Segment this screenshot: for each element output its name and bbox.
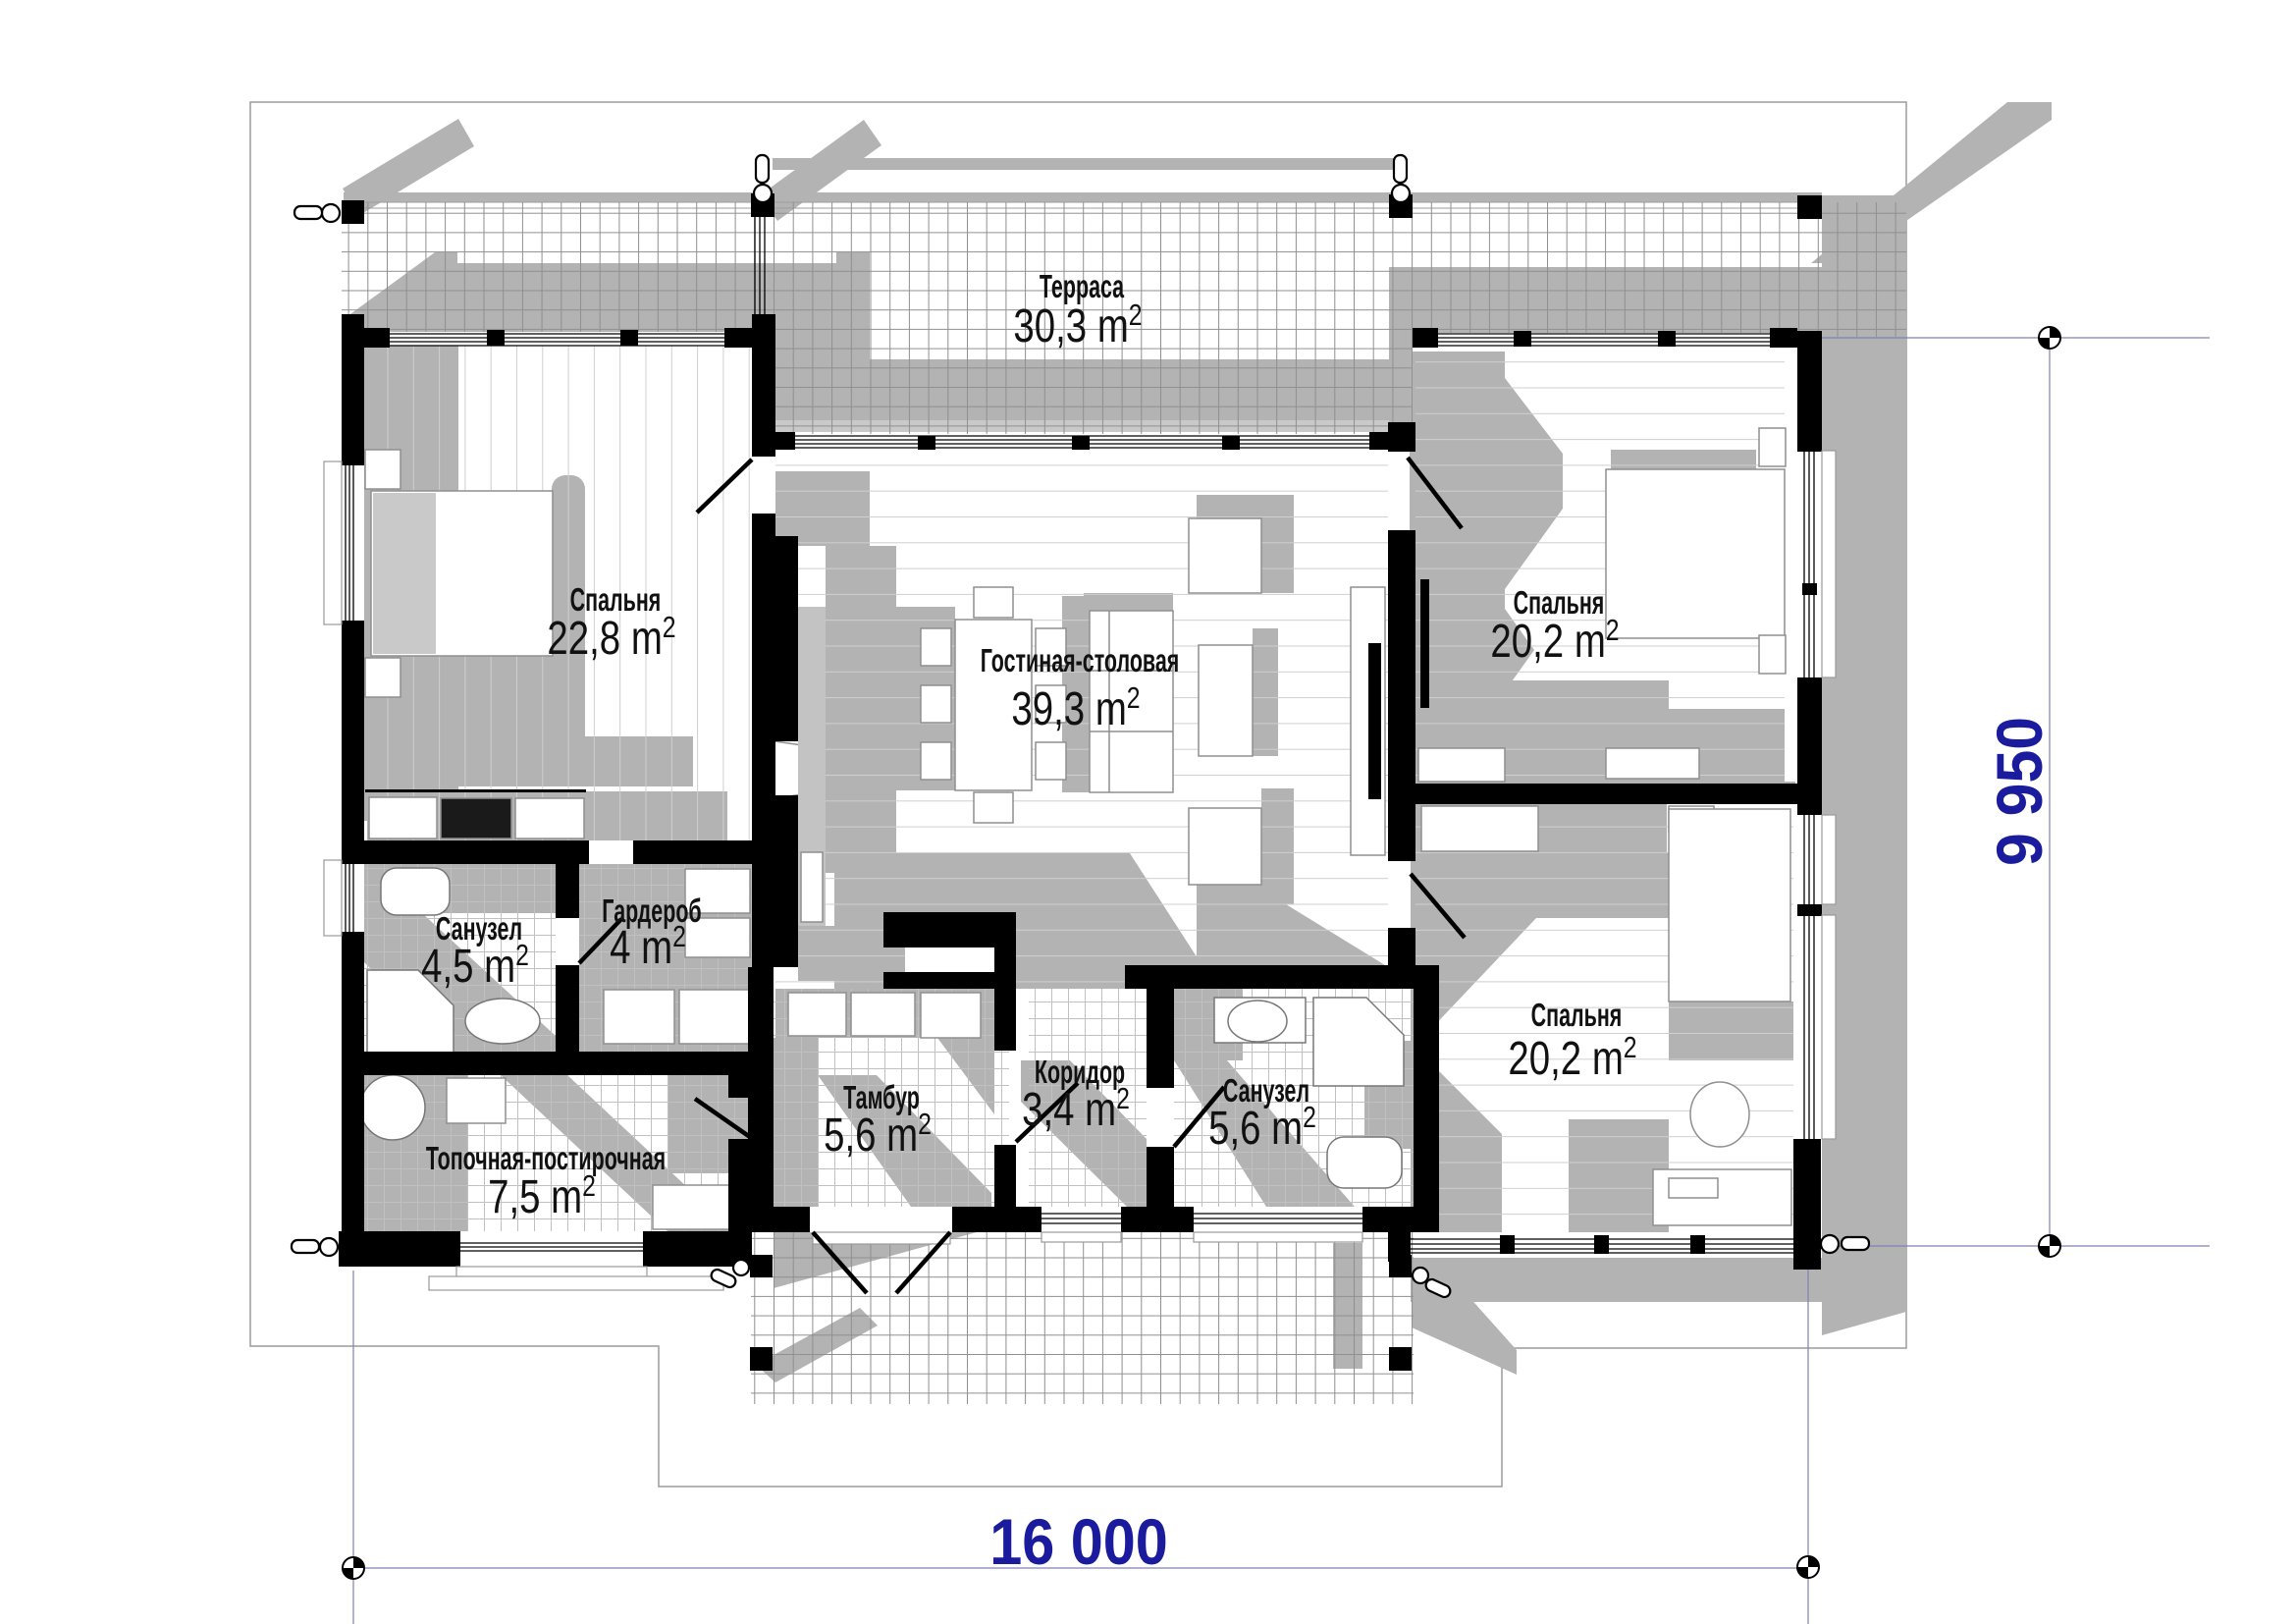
svg-text:22,8 m2: 22,8 m2 <box>547 610 675 665</box>
svg-text:39,3 m2: 39,3 m2 <box>1011 680 1140 735</box>
svg-text:9 950: 9 950 <box>1985 717 2056 866</box>
svg-text:3,4 m2: 3,4 m2 <box>1022 1081 1130 1136</box>
svg-text:5,6 m2: 5,6 m2 <box>1208 1100 1316 1155</box>
svg-text:30,3 m2: 30,3 m2 <box>1013 298 1142 352</box>
svg-text:16 000: 16 000 <box>989 1506 1168 1579</box>
svg-text:Гостиная-столовая: Гостиная-столовая <box>981 642 1180 678</box>
svg-text:7,5 m2: 7,5 m2 <box>488 1168 596 1223</box>
svg-text:Спальня: Спальня <box>1531 997 1623 1033</box>
svg-text:5,6 m2: 5,6 m2 <box>824 1107 932 1162</box>
svg-text:20,2 m2: 20,2 m2 <box>1490 613 1619 668</box>
svg-text:20,2 m2: 20,2 m2 <box>1508 1030 1636 1085</box>
svg-text:Терраса: Терраса <box>1040 268 1125 304</box>
svg-text:4,5 m2: 4,5 m2 <box>421 938 529 993</box>
